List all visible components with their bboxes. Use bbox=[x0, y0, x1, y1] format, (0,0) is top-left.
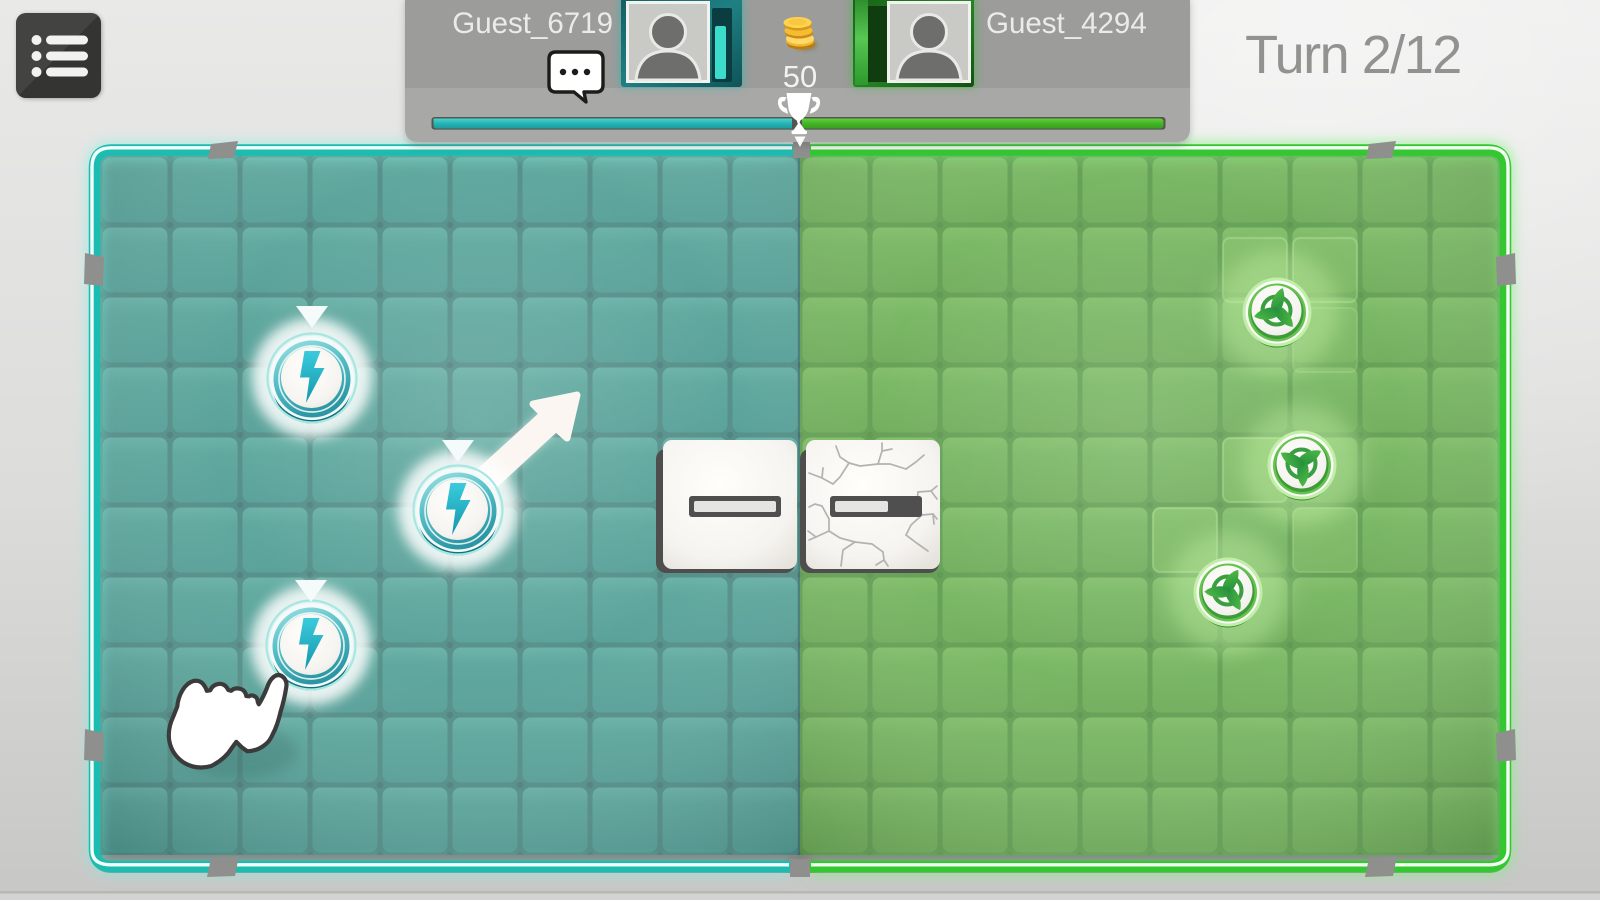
svg-text:Guest_4294: Guest_4294 bbox=[986, 7, 1147, 40]
svg-text:Guest_6719: Guest_6719 bbox=[452, 7, 613, 40]
svg-text:50: 50 bbox=[783, 59, 817, 94]
svg-text:Turn 2/12: Turn 2/12 bbox=[1245, 25, 1461, 85]
